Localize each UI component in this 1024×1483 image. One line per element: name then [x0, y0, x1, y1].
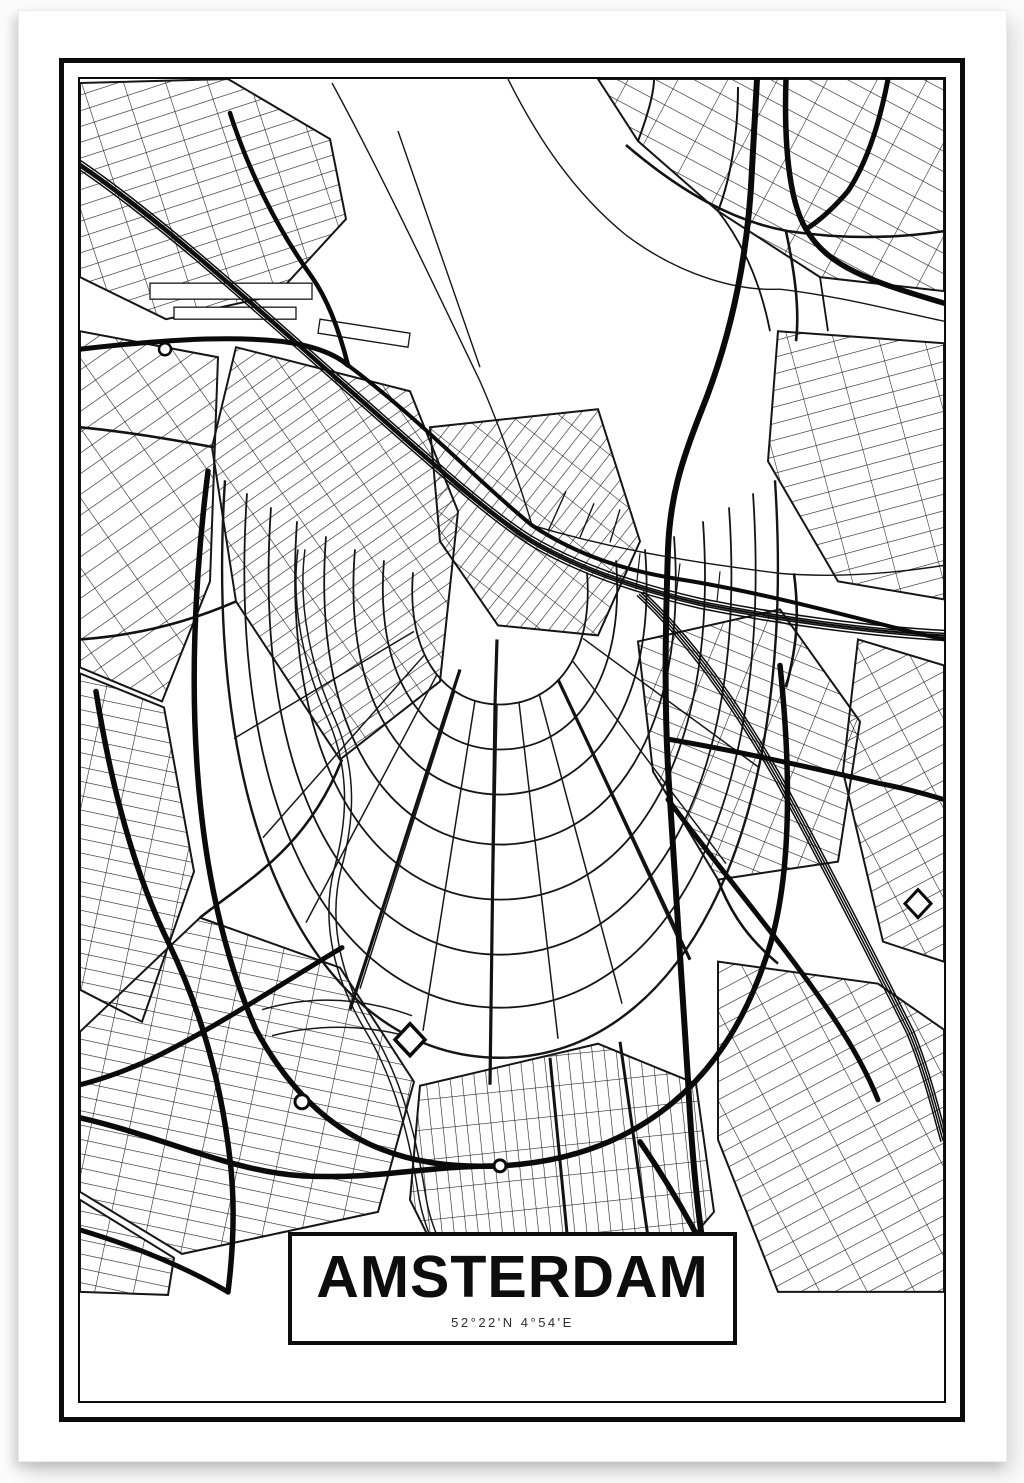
- page-background: { "poster": { "title": "AMSTERDAM", "coo…: [0, 0, 1024, 1483]
- city-coordinates: 52°22'N 4°54'E: [451, 1315, 574, 1330]
- amsterdam-street-map: [80, 79, 944, 1401]
- map-inner-border: AMSTERDAM 52°22'N 4°54'E: [78, 77, 946, 1403]
- district-street-grids: [80, 79, 944, 1308]
- map-title-box: AMSTERDAM 52°22'N 4°54'E: [288, 1232, 737, 1345]
- poster-frame-border: AMSTERDAM 52°22'N 4°54'E: [59, 58, 965, 1422]
- city-name: AMSTERDAM: [316, 1249, 708, 1305]
- map-poster: AMSTERDAM 52°22'N 4°54'E: [18, 10, 1007, 1462]
